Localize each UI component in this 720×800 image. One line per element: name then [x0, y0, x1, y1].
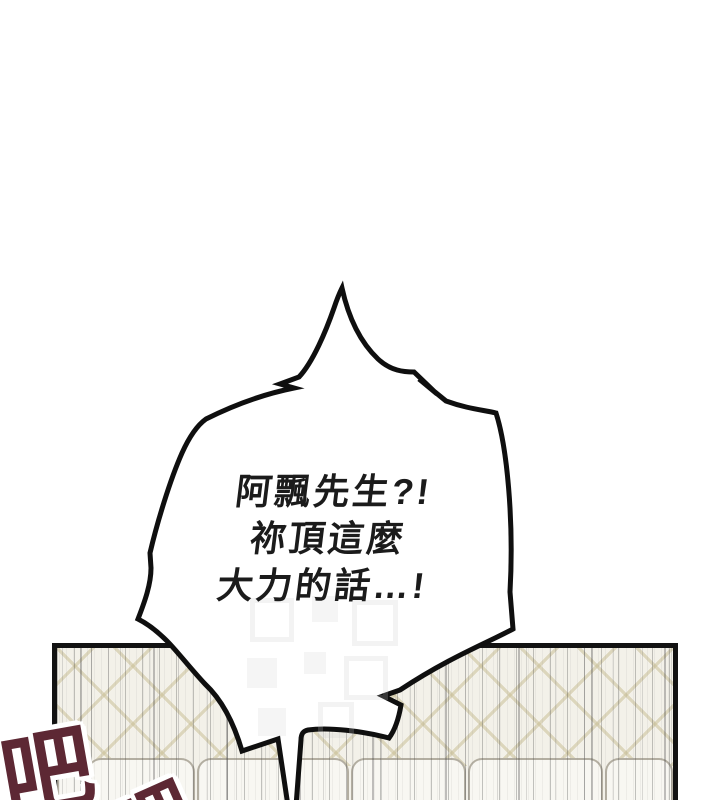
speech-text: 阿飄先生?! 祢頂這麼 大力的話…!	[161, 468, 494, 609]
speech-line: 阿飄先生?!	[173, 468, 495, 515]
watermark-block	[247, 658, 277, 688]
watermark-block	[318, 702, 354, 738]
speech-line: 祢頂這麼	[167, 515, 489, 562]
speech-line: 大力的話…!	[161, 562, 483, 609]
watermark-block	[258, 708, 286, 736]
watermark-block	[304, 652, 326, 674]
watermark-block	[344, 656, 388, 700]
comic-page: 阿飄先生?! 祢頂這麼 大力的話…! 吧 吧	[0, 0, 720, 800]
